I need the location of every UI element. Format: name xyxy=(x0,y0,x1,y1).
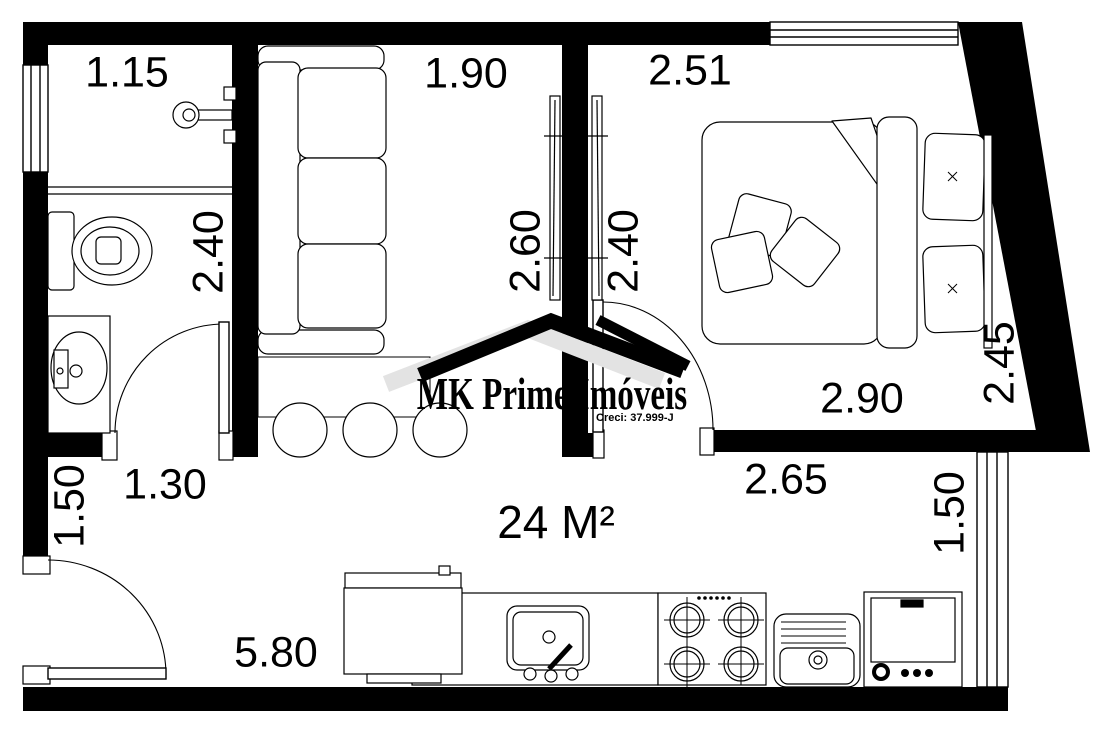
area-label: 24 M² xyxy=(497,499,615,545)
wall-left-upper xyxy=(23,22,48,65)
entry-jamb-top xyxy=(23,556,50,574)
entry-door xyxy=(48,560,166,679)
bedroom-window xyxy=(770,22,958,45)
wall-bottom xyxy=(23,687,1008,711)
kitchen-appliances xyxy=(344,566,962,687)
bathroom-jamb-right xyxy=(219,431,233,460)
dim-bedroom-width: 2.51 xyxy=(648,50,732,93)
floor-plan: 1.15 1.90 2.51 2.40 2.60 2.40 2.45 2.90 … xyxy=(0,0,1101,729)
wall-bedroom-bottom xyxy=(713,430,1085,452)
bed xyxy=(702,117,992,348)
wall-top xyxy=(25,22,770,45)
dim-living-width: 1.90 xyxy=(424,53,508,96)
shower-icon xyxy=(173,87,236,143)
dim-kitchen-width: 5.80 xyxy=(234,632,318,675)
bathroom-door xyxy=(115,322,229,433)
blanket-band xyxy=(877,117,917,348)
wall-middle-cap xyxy=(562,433,597,457)
dim-living-depth: 2.60 xyxy=(505,209,548,293)
kitchen-window xyxy=(977,452,1008,687)
bathroom-jamb-left xyxy=(102,431,117,460)
bathroom-door-leaf xyxy=(219,322,229,433)
stool xyxy=(273,403,327,457)
bathroom-door-arc xyxy=(115,324,224,433)
wall-left-main xyxy=(23,172,48,558)
sofa xyxy=(258,46,386,354)
entry-jamb-bottom xyxy=(23,666,50,684)
pillow xyxy=(923,245,986,333)
stove-icon xyxy=(658,593,766,687)
bathroom-sink-icon xyxy=(48,316,110,433)
bedroom-jamb-right xyxy=(700,428,714,455)
laundry-tank-icon xyxy=(774,614,860,687)
throw-pillow xyxy=(710,230,774,294)
pillow xyxy=(923,133,986,221)
entry-door-leaf xyxy=(48,668,166,679)
headboard xyxy=(984,135,992,348)
bedroom-furniture xyxy=(702,117,992,348)
dim-bedroom-depth: 2.40 xyxy=(603,209,646,293)
dim-bedroom-bottom: 2.90 xyxy=(820,378,904,421)
watermark-license: Creci: 37.999-J xyxy=(596,413,674,424)
dim-bathroom-width: 1.15 xyxy=(85,52,169,95)
kitchen-sink-icon xyxy=(507,606,589,682)
bathroom-window xyxy=(23,65,48,172)
wall-bathroom-bottom xyxy=(48,433,106,457)
dim-bedroom-side: 2.45 xyxy=(979,321,1022,405)
entry-door-arc xyxy=(48,560,166,675)
floor-plan-drawing xyxy=(0,0,1101,729)
watermark-brand: MK Prime Imóveis xyxy=(417,371,687,417)
dim-kitchen-window-side: 1.50 xyxy=(929,471,972,555)
dim-hall-width: 1.30 xyxy=(123,464,207,507)
dim-entry-side: 1.50 xyxy=(49,464,92,548)
dim-kitchen-top: 2.65 xyxy=(744,459,828,502)
toilet-icon xyxy=(48,212,152,290)
stool xyxy=(343,403,397,457)
dim-bathroom-depth: 2.40 xyxy=(188,210,231,294)
bedroom-jamb-left xyxy=(593,430,604,458)
microwave-icon xyxy=(864,592,962,687)
fridge-icon xyxy=(344,566,462,683)
